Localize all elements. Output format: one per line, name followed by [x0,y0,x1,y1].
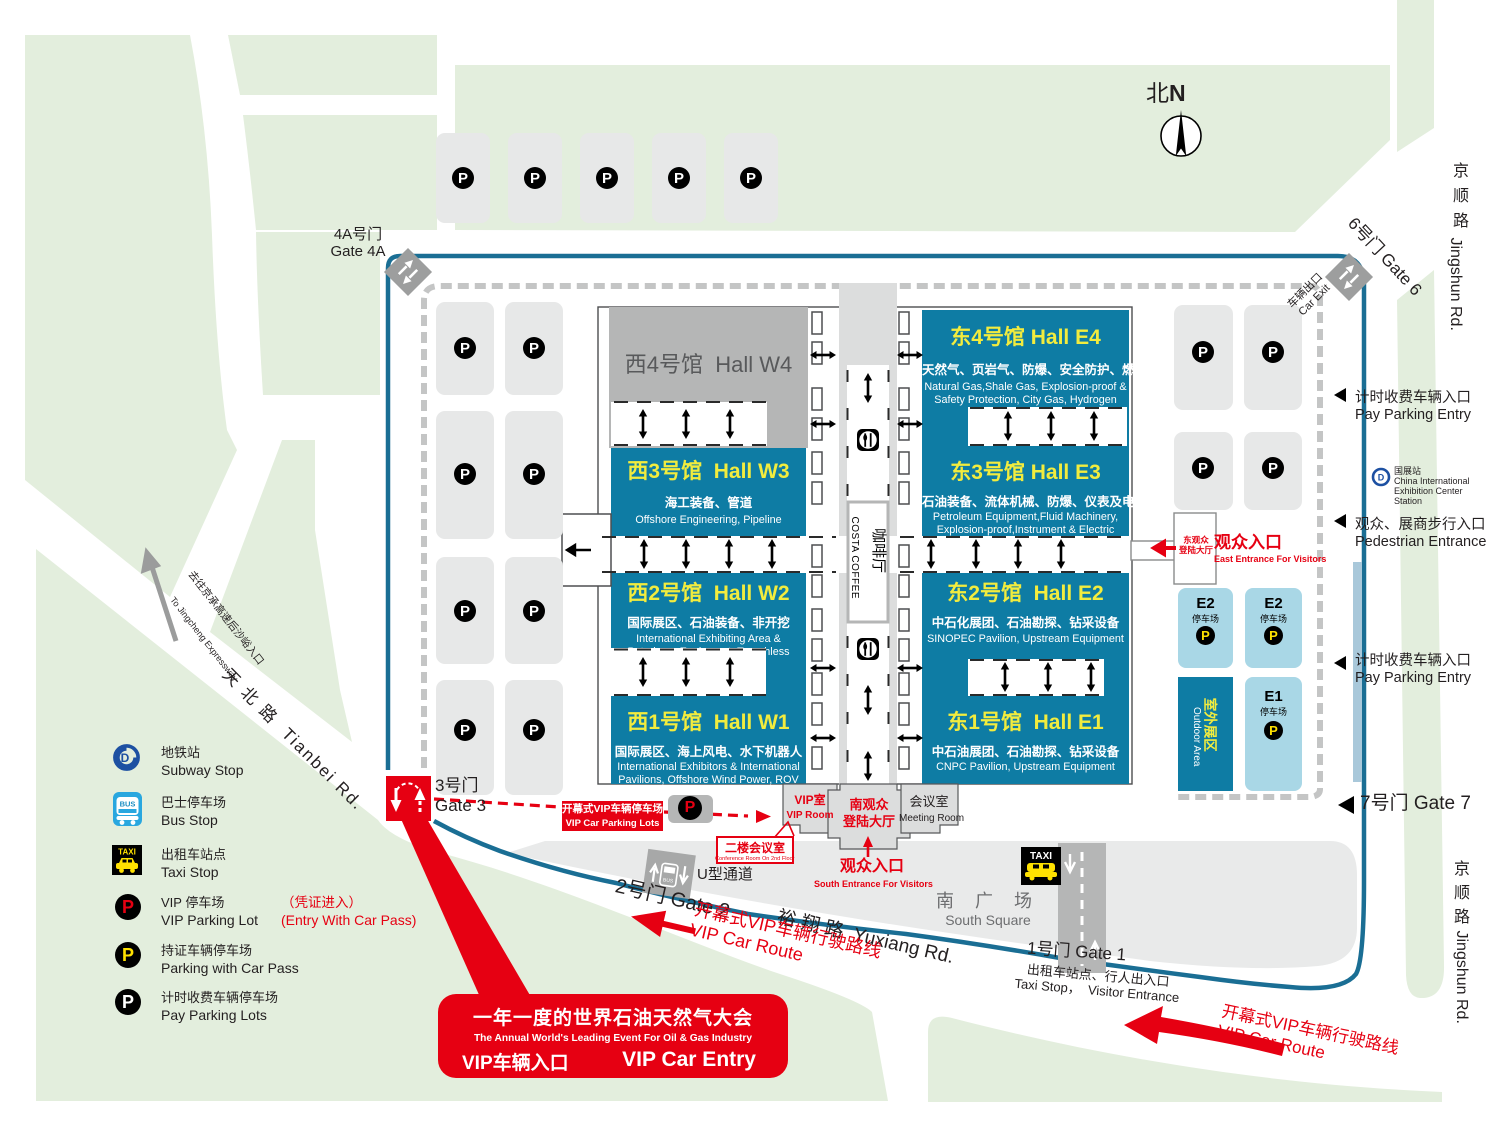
svg-text:D: D [1378,473,1385,483]
svg-text:D: D [121,751,130,765]
svg-text:BUS: BUS [120,800,136,809]
svg-text:TAXI: TAXI [1030,851,1052,862]
svg-text:TAXI: TAXI [118,848,136,857]
